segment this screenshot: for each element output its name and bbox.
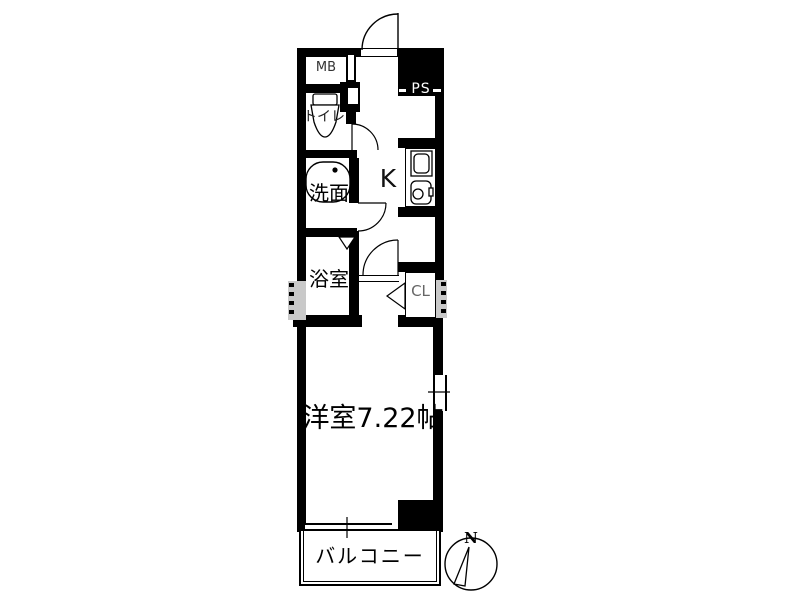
toilet-label: トイレ — [300, 110, 348, 125]
kitchen-sink-icon — [411, 151, 432, 176]
western-room-label: 洋室7.22帖 — [298, 404, 448, 434]
closet-folding-door-icon — [387, 283, 405, 309]
hall-door — [363, 240, 398, 275]
closet-label: CL — [405, 283, 436, 300]
entrance-door — [362, 13, 398, 50]
floor-plan: MB PS トイレ 洗面 浴室 K CL 洋室7.22帖 バルコニー N — [0, 0, 800, 600]
kitchen-label: K — [374, 165, 402, 193]
bathroom-folding-door-icon — [339, 237, 355, 249]
ps-tick-left — [399, 89, 406, 92]
toilet-door — [352, 124, 378, 150]
washroom-label: 洗面 — [302, 182, 356, 204]
bathroom-label: 浴室 — [302, 268, 356, 290]
washroom-door — [358, 203, 386, 231]
compass-north-label: N — [459, 530, 483, 547]
meter-box-label: MB — [306, 61, 346, 75]
kitchen-stove-icon — [411, 181, 433, 204]
balcony-label: バルコニー — [299, 545, 441, 567]
ps-tick-right — [433, 89, 441, 92]
